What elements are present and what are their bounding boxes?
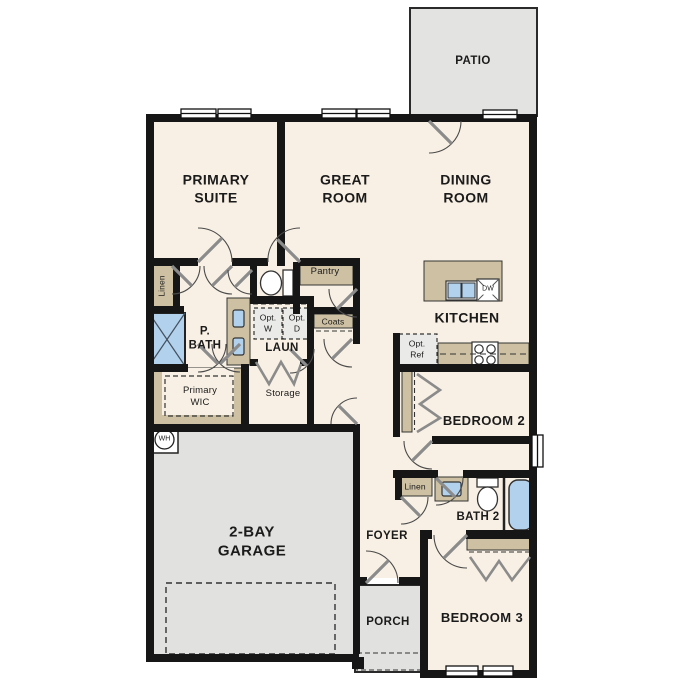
label-foyer: FOYER	[366, 529, 408, 543]
window-icon	[483, 110, 517, 119]
label-pantry: Pantry	[311, 266, 340, 278]
label-opt-washer: Opt. W	[260, 312, 276, 333]
label-laundry: LAUN	[265, 341, 299, 355]
label-opt-dryer: Opt. D	[289, 312, 305, 333]
bedroom2-closet-shelf	[402, 370, 412, 432]
label-porch: PORCH	[366, 615, 410, 629]
label-patio: PATIO	[455, 54, 490, 68]
label-linen-hall: Linen	[404, 482, 425, 493]
window-icon	[181, 109, 216, 118]
label-linen-primary: Linen	[157, 275, 168, 296]
label-dining-room: DINING ROOM	[440, 172, 491, 207]
label-dishwasher: DW	[481, 286, 495, 295]
label-bedroom3: BEDROOM 3	[441, 610, 523, 626]
label-primary-wic: Primary WIC	[183, 385, 217, 409]
label-storage: Storage	[266, 388, 301, 400]
label-water-heater: WH	[159, 436, 171, 445]
window-icon	[446, 666, 478, 676]
label-primary-suite: PRIMARY SUITE	[183, 172, 250, 207]
label-garage: 2-BAY GARAGE	[218, 523, 286, 561]
island-sink-icon	[446, 281, 477, 300]
label-coats: Coats	[322, 317, 345, 328]
primary-toilet-icon	[261, 270, 294, 296]
window-icon	[483, 666, 513, 676]
window-icon	[218, 109, 251, 118]
porch-column	[352, 657, 364, 669]
bedroom3-closet-shelf	[467, 538, 532, 550]
shower-icon	[149, 313, 185, 366]
label-great-room: GREAT ROOM	[320, 172, 370, 207]
bath2-toilet-icon	[477, 478, 498, 511]
label-bedroom2: BEDROOM 2	[443, 413, 525, 429]
label-bath2: BATH 2	[456, 510, 499, 524]
foyer-floor	[358, 538, 421, 578]
label-opt-ref: Opt. Ref	[409, 338, 425, 359]
window-icon	[357, 109, 390, 118]
floorplan-drawing	[0, 0, 687, 687]
floorplan: PATIO PRIMARY SUITE GREAT ROOM DINING RO…	[0, 0, 687, 687]
window-icon	[322, 109, 356, 118]
label-kitchen: KITCHEN	[434, 309, 499, 327]
bedroom3-floor	[420, 538, 537, 671]
window-icon	[532, 435, 543, 467]
label-p-bath: P. BATH	[189, 325, 222, 354]
